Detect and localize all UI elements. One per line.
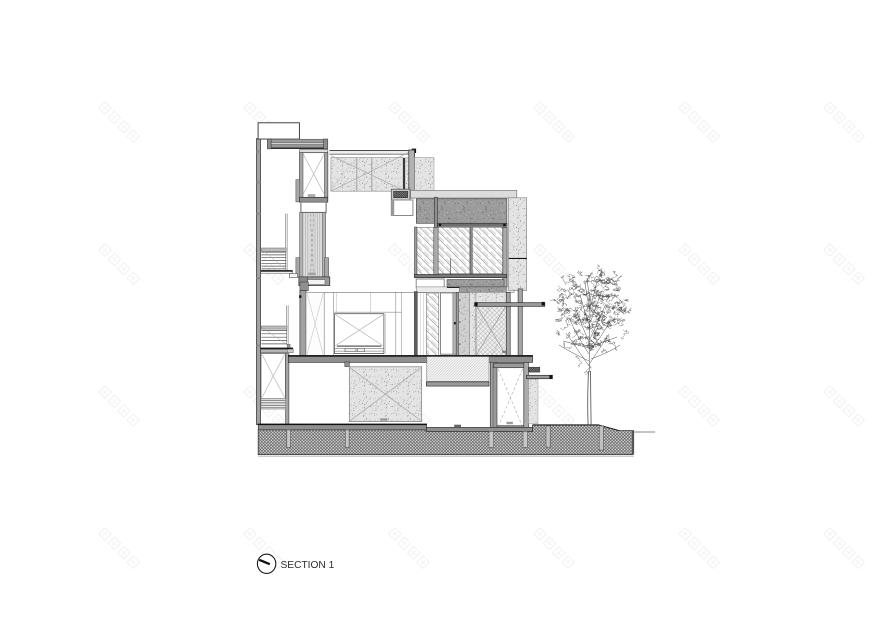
svg-text:SECTION 1: SECTION 1	[281, 560, 335, 571]
